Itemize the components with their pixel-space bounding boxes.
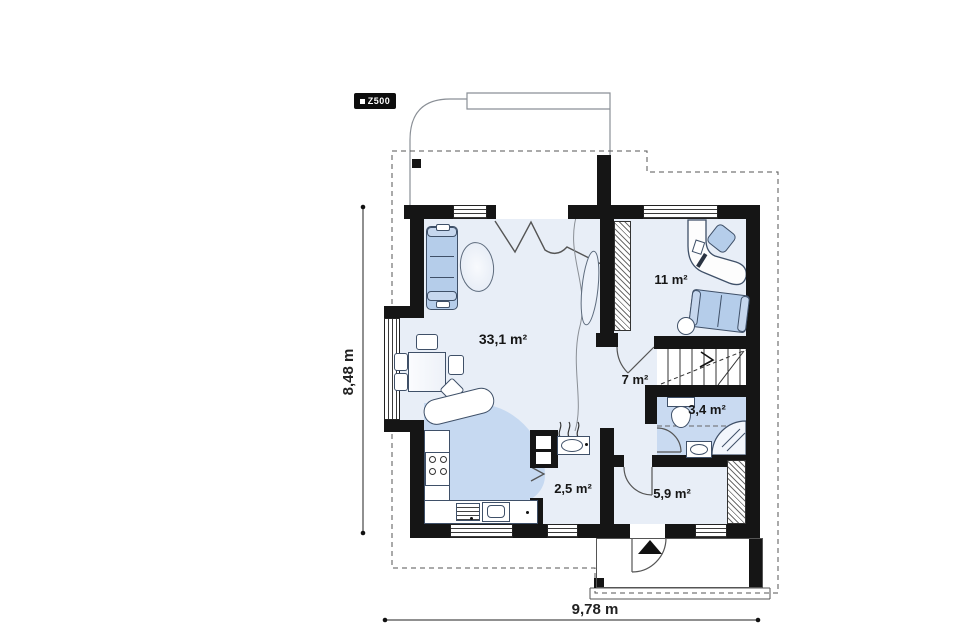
dining-chair: [394, 353, 408, 371]
dim-dot: [383, 618, 388, 623]
stove-burner: [440, 468, 447, 475]
curtain-line: [574, 210, 583, 431]
stair-direction-arrow: [700, 352, 713, 367]
office-sofa-group: [688, 289, 750, 336]
counter-dot: [526, 511, 529, 514]
wall-hall-entry: [614, 455, 624, 467]
sofa-cushion-line: [430, 256, 454, 257]
room-label-utility: 2,5 m²: [547, 481, 599, 496]
floor-plan-canvas: 33,1 m² 11 m² 7 m² 3,4 m² 2,5 m² 5,9 m² …: [0, 0, 960, 630]
kitchen-drainer: [456, 503, 480, 521]
sofa-armrest: [427, 291, 457, 301]
wardrobe-office: [614, 221, 631, 331]
dimension-vertical: 8,48 m: [340, 337, 356, 407]
room-label-entry: 5,9 m²: [645, 486, 699, 501]
wall-bottom: [513, 524, 547, 538]
porch-step-lines: [590, 588, 770, 599]
bathroom-door-arc: [657, 428, 681, 452]
room-label-bathroom: 3,4 m²: [681, 402, 733, 417]
wardrobe-entry: [727, 460, 746, 524]
dimension-horizontal: 9,78 m: [555, 601, 635, 618]
wall-right: [746, 205, 760, 538]
window-living: [453, 205, 487, 219]
counter-dot: [470, 517, 473, 520]
z500-watermark: Z500: [354, 93, 396, 109]
wall-bathroom-left: [645, 397, 657, 424]
plant-leaf: [578, 250, 602, 325]
stove-burner: [429, 456, 436, 463]
utility-door-chevron: [531, 467, 544, 481]
chimney-flue: [536, 436, 551, 449]
wall-stairs-bathroom: [645, 385, 746, 397]
terrace-post: [597, 155, 611, 205]
wall-bay-top: [384, 306, 424, 318]
side-table-round: [677, 317, 695, 335]
office-door-arc: [617, 347, 654, 373]
dining-chair: [394, 373, 408, 391]
wall-left: [410, 205, 424, 312]
wall-end-cap: [596, 333, 618, 347]
room-label-office: 11 m²: [645, 272, 697, 287]
stove-burner: [429, 468, 436, 475]
sofa-cushion-line: [430, 277, 454, 278]
wall-bottom: [665, 524, 695, 538]
wall-bottom: [410, 524, 450, 538]
window-office: [643, 205, 718, 219]
wall-utility-entry: [600, 428, 614, 538]
room-label-living: 33,1 m²: [463, 331, 543, 347]
porch-slab: [596, 538, 763, 588]
terrace-post-small: [412, 159, 421, 168]
z500-logo-text: Z500: [368, 96, 391, 106]
dining-table: [408, 352, 446, 392]
dim-dot: [361, 531, 366, 536]
window-utility: [547, 524, 578, 538]
window-entry-sidelight: [695, 524, 727, 538]
wall-left: [410, 432, 424, 538]
z500-logo-icon: [360, 99, 365, 104]
utility-sink-bowl: [561, 439, 583, 452]
chimney-flue: [536, 452, 551, 464]
dim-dot: [361, 205, 366, 210]
stove-burner: [440, 456, 447, 463]
kitchen-counter-bottom: [424, 500, 538, 524]
terrace-outline: [410, 93, 610, 205]
utility-tap: [585, 443, 588, 446]
dining-chair: [448, 355, 464, 375]
bathroom-sink-bowl: [690, 444, 708, 455]
wall-top: [487, 205, 496, 219]
dim-dot: [756, 618, 761, 623]
window-kitchen: [450, 524, 513, 538]
sofa-pillow: [436, 224, 450, 231]
wall-living-office: [600, 205, 614, 347]
room-label-hall: 7 m²: [612, 372, 658, 387]
dining-chair: [416, 334, 438, 350]
wall-bay-bottom: [384, 420, 424, 432]
sofa-pillow: [436, 301, 450, 308]
kitchen-sink-bowl: [487, 505, 505, 518]
wall-office-stairs: [654, 336, 746, 349]
